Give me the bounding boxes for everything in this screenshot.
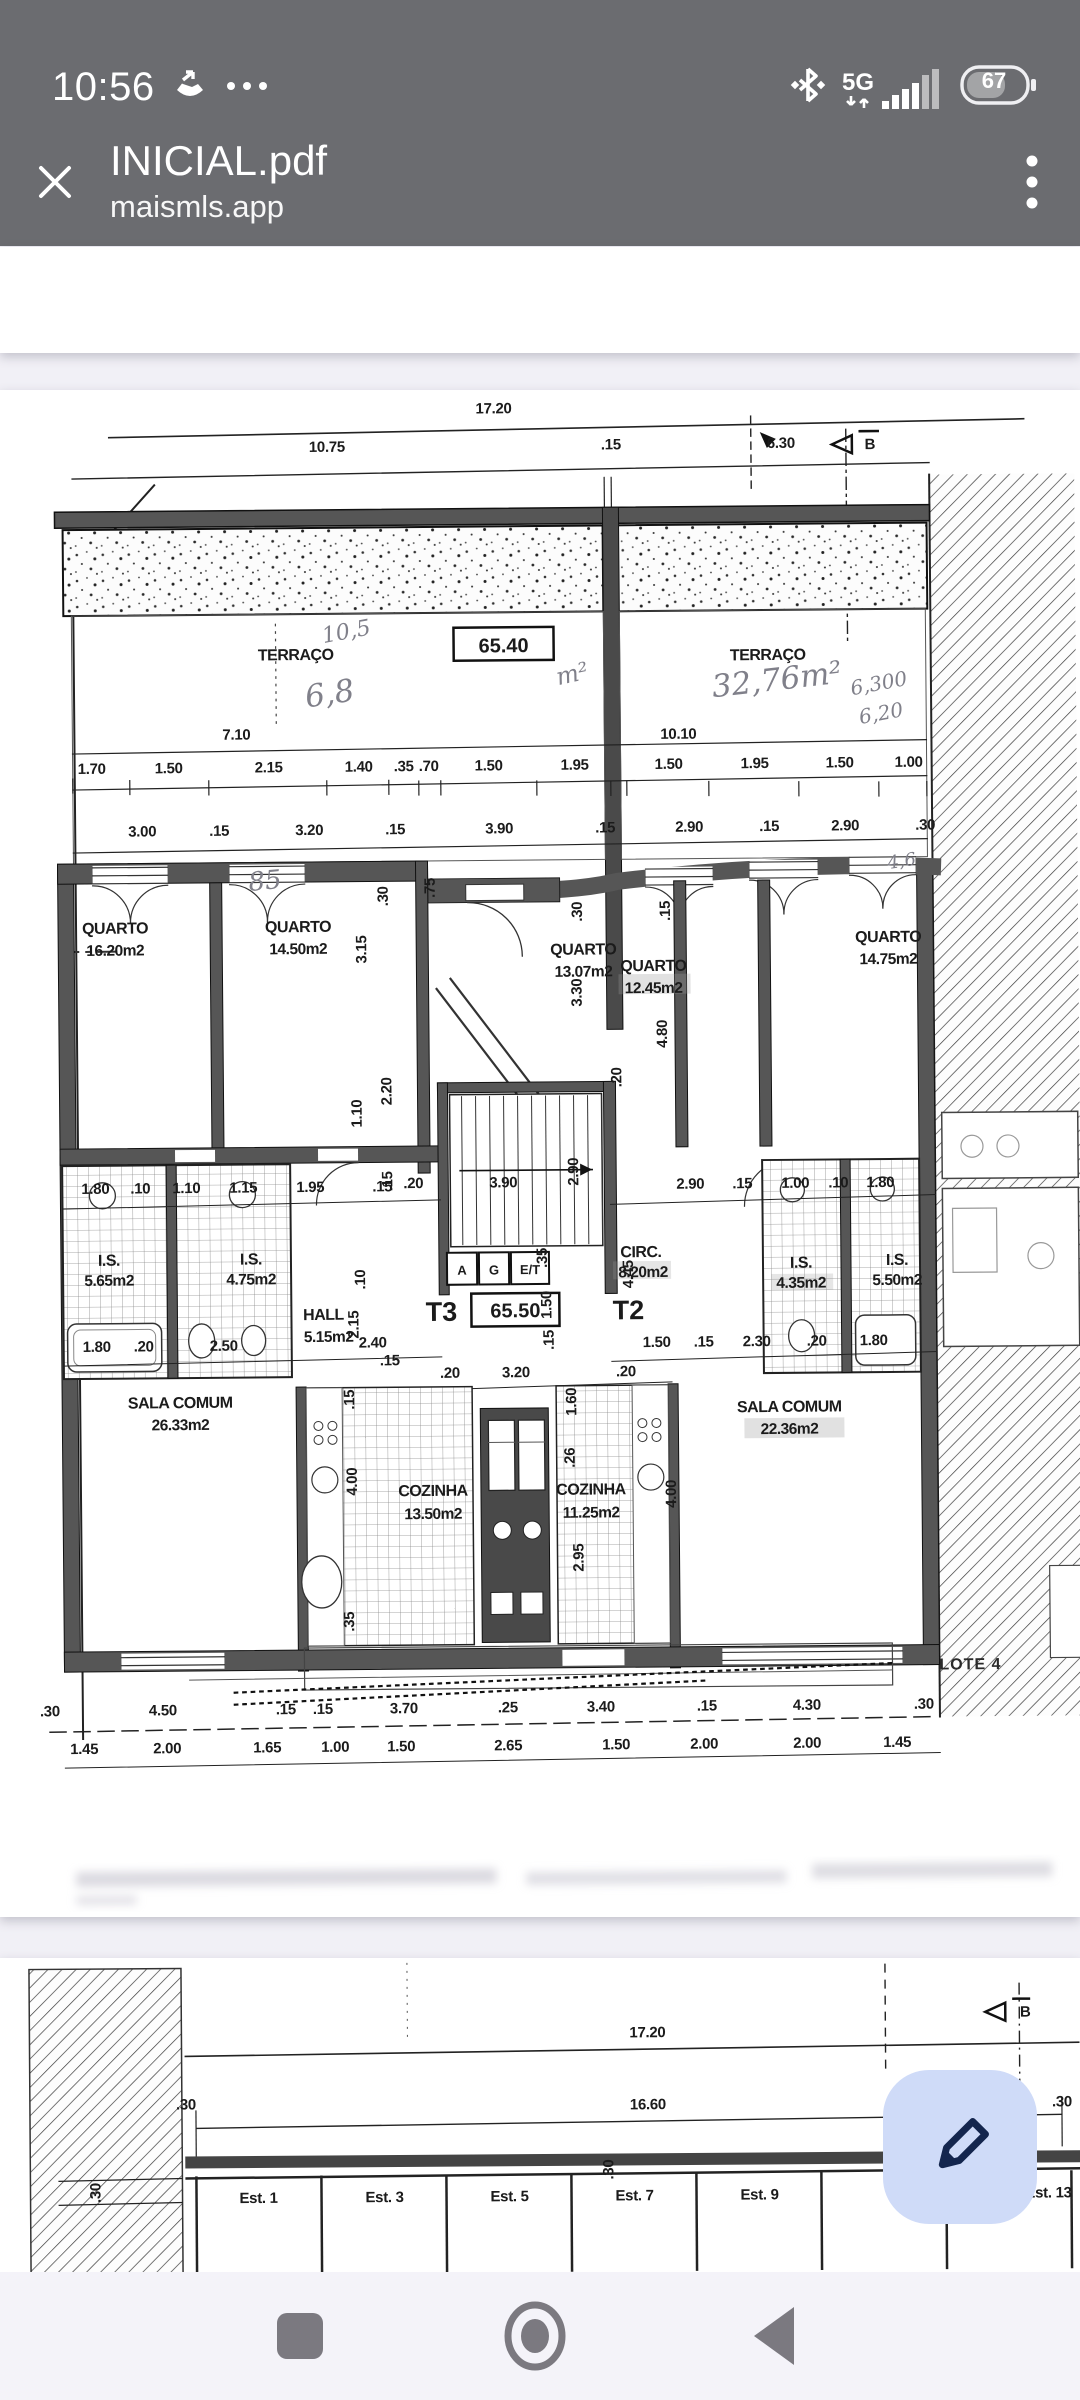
plan-label: 10,5 [320, 616, 373, 650]
more-notifications-icon [225, 79, 269, 97]
plan-label: 4,6 [885, 849, 917, 874]
plan-label: .30 [915, 817, 935, 834]
plan-label: .25 [498, 1699, 518, 1716]
illegible-smudge [76, 1862, 1052, 1906]
pdf-page-floorplan[interactable]: 17.2010.75.156.30BTERRAÇO65.40m²10,56,87… [0, 390, 1080, 1917]
recent-apps-button[interactable] [252, 2272, 348, 2400]
document-source: maismls.app [110, 189, 984, 225]
plan-label: 1.10 [172, 1180, 200, 1197]
plan-label: .10 [828, 1174, 848, 1191]
plan-label: 10.10 [660, 726, 696, 743]
plan-label: 2.00 [793, 1735, 821, 1752]
plan-label: Est. 9 [740, 2186, 778, 2203]
plan-label: 1.65 [253, 1739, 281, 1756]
plan-label: 6,20 [857, 697, 905, 729]
plan-label: .15 [276, 1701, 296, 1718]
plan-label: 1.00 [321, 1739, 349, 1756]
plan-label: 14.75m2 [859, 951, 917, 969]
plan-label: .15 [595, 819, 615, 836]
plan-label: .10 [130, 1180, 150, 1197]
plan-label: 2.20 [378, 1077, 395, 1105]
plan-label: 1.10 [349, 1100, 366, 1128]
plan-label: Est. 1 [239, 2190, 277, 2207]
plan-label: 16.60 [630, 2096, 666, 2113]
plan-label: A [457, 1263, 467, 1278]
plan-label: QUARTO [855, 929, 921, 947]
plan-label: .30 [87, 2183, 104, 2203]
battery-percent: 67 [960, 68, 1028, 94]
plan-label: 2.30 [743, 1333, 771, 1350]
plan-label: T2 [613, 1295, 645, 1325]
plan-label: 1.50 [475, 757, 503, 774]
plan-label: .30 [1052, 2093, 1072, 2110]
plan-label: 14.50m2 [269, 941, 327, 959]
plan-label: I.S. [886, 1252, 908, 1269]
edit-fab[interactable] [883, 2070, 1037, 2224]
plan-label: .35 [534, 1248, 551, 1268]
plan-label: m² [553, 657, 591, 691]
plan-label: I.S. [240, 1251, 262, 1268]
plan-label: 1.50 [538, 1291, 555, 1319]
plan-label: .15 [759, 818, 779, 835]
plan-label: 2.00 [153, 1740, 181, 1757]
floorplan-drawing: 17.2010.75.156.30BTERRAÇO65.40m²10,56,87… [0, 390, 1080, 1917]
close-button[interactable] [0, 162, 110, 202]
plan-label: 4.80 [654, 1020, 671, 1048]
close-icon [35, 162, 75, 202]
plan-label: 26.33m2 [151, 1417, 209, 1435]
plan-label: 3.00 [128, 823, 156, 840]
plan-label: CIRC. [620, 1244, 661, 1261]
plan-label: 3.30 [569, 979, 586, 1007]
plan-label: 2.40 [359, 1334, 387, 1351]
plan-label: .15 [313, 1701, 333, 1718]
plan-label: 13.07m2 [555, 963, 613, 981]
plan-label: 1.60 [563, 1388, 580, 1416]
plan-label: 3.90 [485, 820, 513, 837]
plan-label: COZINHA [398, 1483, 468, 1501]
plan-label: 3.15 [353, 935, 370, 963]
plan-label: .15 [601, 436, 621, 453]
plan-label: B [865, 436, 876, 453]
document-title: INICIAL.pdf [110, 139, 984, 183]
plan-label: .75 [422, 878, 439, 898]
plan-label: .20 [440, 1365, 460, 1382]
plan-label: .35 [394, 758, 414, 775]
plan-label: QUARTO [550, 941, 616, 959]
plan-label: 17.20 [629, 2024, 665, 2041]
plan-label: 1.80 [866, 1174, 894, 1191]
plan-label: 1.15 [229, 1179, 257, 1196]
plan-label: .35 [341, 1612, 358, 1632]
plan-label: 7.10 [222, 727, 250, 744]
plan-label: 2.65 [494, 1737, 522, 1754]
plan-label: QUARTO [265, 919, 331, 937]
plan-label: 1.00 [781, 1175, 809, 1192]
plan-label: 6,300 [848, 666, 909, 700]
plan-label: 1.80 [860, 1332, 888, 1349]
plan-label: 3.20 [502, 1364, 530, 1381]
phone-screen: 10:56 [0, 0, 1080, 2400]
plan-label: 2.50 [210, 1338, 238, 1355]
plan-label: 1.80 [83, 1339, 111, 1356]
plan-label: LOTE 4 [939, 1656, 1001, 1674]
plan-label: 3.70 [390, 1700, 418, 1717]
plan-label: .15 [372, 1178, 392, 1195]
pdf-viewer[interactable]: 17.2010.75.156.30BTERRAÇO65.40m²10,56,87… [0, 246, 1080, 2272]
plan-label: 1.40 [345, 758, 373, 775]
plan-label: 4.50 [149, 1702, 177, 1719]
plan-label: 1.80 [81, 1181, 109, 1198]
overflow-menu-icon [1025, 153, 1039, 211]
plan-label: .30 [600, 2159, 617, 2179]
plan-label: .15 [694, 1333, 714, 1350]
plan-label: 3.20 [295, 822, 323, 839]
plan-label: 2.15 [255, 759, 283, 776]
plan-label: COZINHA [556, 1481, 626, 1499]
plan-label: 6.30 [767, 435, 795, 452]
plan-label: 65.40 [478, 635, 528, 657]
plan-label: 1.50 [387, 1738, 415, 1755]
plan-label: 1.00 [895, 754, 923, 771]
plan-label: 1.45 [883, 1734, 911, 1751]
pdf-page-previous[interactable] [0, 247, 1080, 353]
plan-label: 16.20m2 [86, 942, 144, 960]
plan-label: 2.90 [831, 817, 859, 834]
plan-label: 2.90 [675, 819, 703, 836]
overflow-menu-button[interactable] [984, 153, 1080, 211]
plan-label: 3.40 [587, 1698, 615, 1715]
plan-label: .20 [403, 1175, 423, 1192]
plan-label: 5.65m2 [84, 1273, 134, 1290]
plan-label: G [489, 1262, 499, 1277]
plan-label: .20 [608, 1067, 625, 1087]
plan-label: .30 [176, 2096, 196, 2113]
plan-label: I.S. [98, 1253, 120, 1270]
back-icon [754, 2307, 794, 2365]
android-nav-bar [0, 2272, 1080, 2400]
plan-label: Est. 5 [490, 2188, 528, 2205]
plan-label: .20 [134, 1338, 154, 1355]
plan-label: .30 [914, 1696, 934, 1713]
plan-label: .30 [375, 886, 392, 906]
plan-label: 2.90 [565, 1158, 582, 1186]
plan-label: 4.75m2 [226, 1271, 276, 1288]
plan-label: 1.95 [741, 755, 769, 772]
plan-label: 4.30 [793, 1697, 821, 1714]
pencil-icon [922, 2109, 998, 2185]
status-bar: 10:56 [0, 0, 1080, 118]
plan-label: .20 [807, 1333, 827, 1350]
plan-label: .15 [341, 1390, 358, 1410]
home-button[interactable] [487, 2272, 583, 2400]
plan-label: I.S. [790, 1255, 812, 1272]
plan-label: 3.90 [489, 1174, 517, 1191]
clock: 10:56 [52, 65, 155, 110]
plan-label: 4.00 [663, 1480, 680, 1508]
plan-label: B [1020, 2004, 1031, 2021]
plan-label: 17.20 [475, 400, 511, 417]
plan-label: 1.50 [155, 760, 183, 777]
plan-label: QUARTO [620, 958, 686, 976]
plan-label: 1.50 [602, 1736, 630, 1753]
plan-label: 1.95 [296, 1179, 324, 1196]
plan-label: .15 [380, 1352, 400, 1369]
plan-label: .15 [732, 1175, 752, 1192]
plan-label: .30 [40, 1703, 60, 1720]
plan-label: Est. 3 [365, 2189, 403, 2206]
plan-label: 10.75 [309, 439, 345, 456]
plan-label: SALA COMUM [737, 1398, 842, 1416]
plan-label: .15 [541, 1330, 558, 1350]
plan-label: 6,8 [303, 672, 357, 715]
plan-label: 65.50 [490, 1300, 540, 1322]
plan-label: T3 [426, 1297, 458, 1327]
plan-label: .70 [419, 758, 439, 775]
plan-label: 1.95 [561, 757, 589, 774]
plan-label: .15 [697, 1697, 717, 1714]
plan-label: HALL [303, 1307, 345, 1324]
plan-label: .20 [616, 1363, 636, 1380]
plan-label: 4.45 [620, 1260, 637, 1288]
plan-label: 1.50 [655, 756, 683, 773]
plan-label: 4.35m2 [776, 1275, 826, 1292]
call-forward-icon [173, 68, 207, 107]
plan-label: 2.95 [570, 1544, 587, 1572]
battery-icon: 67 [960, 65, 1038, 110]
plan-label: 22.36m2 [761, 1421, 819, 1439]
recent-apps-icon [277, 2313, 323, 2359]
plan-label: .10 [352, 1270, 369, 1290]
pdf-viewer-header: INICIAL.pdf maismls.app [0, 118, 1080, 246]
plan-label: 1.50 [643, 1334, 671, 1351]
plan-label: 1.70 [78, 761, 106, 778]
plan-label: 13.50m2 [404, 1506, 462, 1524]
plan-label: .30 [569, 902, 586, 922]
plan-label: SALA COMUM [128, 1395, 233, 1413]
plan-label: 12.45m2 [625, 980, 683, 998]
plan-label: 4.00 [344, 1468, 361, 1496]
plan-label: 1.50 [826, 754, 854, 771]
back-button[interactable] [726, 2272, 822, 2400]
plan-label: .15 [657, 901, 674, 921]
plan-label: 1.45 [70, 1741, 98, 1758]
bluetooth-icon [790, 65, 826, 110]
plan-label: QUARTO [82, 920, 148, 938]
plan-label: .26 [562, 1448, 579, 1468]
home-icon [504, 2301, 566, 2371]
plan-label: .15 [209, 823, 229, 840]
plan-label: Est. 7 [615, 2187, 653, 2204]
plan-label: .15 [385, 821, 405, 838]
plan-label: 11.25m2 [563, 1504, 620, 1521]
plan-label: 5.50m2 [872, 1272, 922, 1289]
plan-label: 2.00 [690, 1735, 718, 1752]
plan-label: 2.15 [345, 1311, 362, 1339]
plan-label: 2.90 [676, 1176, 704, 1193]
plan-label: 85 [247, 865, 283, 898]
signal-5g-icon: 5G [842, 67, 944, 109]
plan-label: TERRAÇO [258, 647, 334, 665]
